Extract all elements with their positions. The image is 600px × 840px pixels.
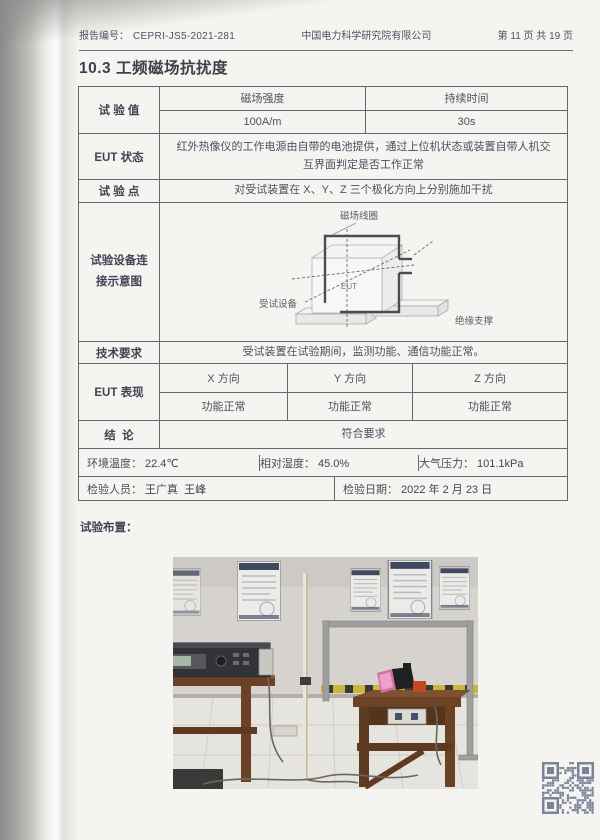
diagram-label-eut: EUT <box>341 282 357 291</box>
qr-code <box>542 762 594 814</box>
section-title: 10.3 工频磁场抗扰度 <box>79 56 228 78</box>
row-conclusion: 结 论 符合要求 <box>79 420 567 448</box>
result-z: 功能正常 <box>412 393 567 421</box>
report-number-label: 报告编号： <box>79 31 129 42</box>
row-setup-diagram: 试验设备连接示意图 <box>79 202 567 341</box>
env-pressure: 大气压力：101.1kPa <box>418 455 567 471</box>
power-strip <box>273 726 297 736</box>
row-label-conclusion: 结 论 <box>79 421 159 448</box>
row-eut-performance: EUT 表现 X 方向 Y 方向 Z 方向 功能正常 功能正常 功能正常 <box>79 363 567 420</box>
row-label-tech-req: 技术要求 <box>79 342 159 363</box>
tech-req-value: 受试装置在试验期间，监测功能、通信功能正常。 <box>159 342 567 363</box>
setup-diagram-cell: 磁场线圈 EUT 受试设备 绝缘支撑 <box>159 203 567 341</box>
diagram-label-coil: 磁场线圈 <box>340 210 378 222</box>
wall-poster <box>439 567 470 609</box>
row-label-setup-diagram: 试验设备连接示意图 <box>79 203 159 341</box>
inspection-date: 检验日期：2022 年 2 月 23 日 <box>334 477 567 500</box>
diagram-label-device: 受试设备 <box>259 298 298 310</box>
test-result-table: 试 验 值 磁场强度 持续时间 100A/m 30s EUT 状态 红外热像仪的… <box>78 86 568 501</box>
company-name: 中国电力科学研究院有限公司 <box>301 27 431 42</box>
wall-poster <box>237 561 281 621</box>
direction-y: Y 方向 <box>287 364 412 392</box>
env-temperature: 环境温度：22.4℃ <box>87 455 259 471</box>
row-label-test-point: 试 验 点 <box>79 180 159 202</box>
value-field-strength: 100A/m <box>160 111 365 134</box>
coil-label-leader <box>332 223 356 235</box>
row-test-point: 试 验 点 对受试装置在 X、Y、Z 三个极化方向上分别施加干扰 <box>79 179 567 202</box>
wall-poster <box>350 569 381 611</box>
row-tech-req: 技术要求 受试装置在试验期间，监测功能、通信功能正常。 <box>79 341 567 363</box>
direction-z: Z 方向 <box>412 364 567 392</box>
value-duration: 30s <box>365 111 567 134</box>
env-humidity: 相对湿度：45.0% <box>259 455 418 471</box>
arrangement-label: 试验布置： <box>80 519 138 535</box>
col-header-duration: 持续时间 <box>365 87 567 110</box>
row-label-eut-performance: EUT 表现 <box>79 364 159 420</box>
signal-generator <box>173 643 273 677</box>
inspectors: 检验人员：王广真 王峰 <box>79 477 334 500</box>
wall-poster <box>388 560 431 619</box>
wall-poster <box>173 569 201 615</box>
report-number: 报告编号：CEPRI-JS5-2021-281 <box>79 27 235 42</box>
setup-diagram: 磁场线圈 EUT 受试设备 绝缘支撑 <box>160 203 567 341</box>
report-number-value: CEPRI-JS5-2021-281 <box>133 31 235 42</box>
page-info: 第 11 页 共 19 页 <box>498 27 573 42</box>
result-x: 功能正常 <box>160 393 287 421</box>
test-arrangement-photo <box>173 557 478 789</box>
row-label-eut-state: EUT 状态 <box>79 134 159 179</box>
page-header: 报告编号：CEPRI-JS5-2021-281 中国电力科学研究院有限公司 第 … <box>79 27 573 51</box>
diagram-label-support: 绝缘支撑 <box>455 315 494 327</box>
col-header-field-strength: 磁场强度 <box>160 87 365 110</box>
row-environment: 环境温度：22.4℃ 相对湿度：45.0% 大气压力：101.1kPa <box>79 448 567 476</box>
row-test-value: 试 验 值 磁场强度 持续时间 100A/m 30s <box>79 87 567 133</box>
conclusion-value: 符合要求 <box>159 421 567 448</box>
direction-x: X 方向 <box>160 364 287 392</box>
coil-lead-line <box>414 241 433 255</box>
row-label-test-value: 试 验 值 <box>79 87 159 133</box>
test-point-value: 对受试装置在 X、Y、Z 三个极化方向上分别施加干扰 <box>159 180 567 202</box>
row-inspection: 检验人员：王广真 王峰 检验日期：2022 年 2 月 23 日 <box>79 476 567 500</box>
row-eut-state: EUT 状态 红外热像仪的工作电源由自带的电池提供，通过上位机状态或装置自带人机… <box>79 133 567 179</box>
eut-state-value: 红外热像仪的工作电源由自带的电池提供，通过上位机状态或装置自带人机交互界面判定是… <box>159 134 567 179</box>
result-y: 功能正常 <box>287 393 412 421</box>
scanned-report-page: 报告编号：CEPRI-JS5-2021-281 中国电力科学研究院有限公司 第 … <box>0 0 600 840</box>
